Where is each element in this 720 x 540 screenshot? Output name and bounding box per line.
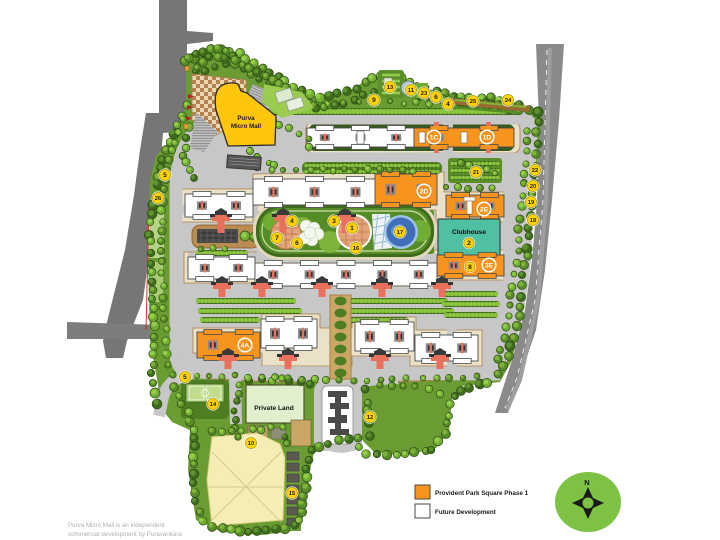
- svg-text:6: 6: [434, 94, 438, 101]
- svg-text:11: 11: [408, 88, 415, 94]
- svg-text:23: 23: [421, 91, 428, 97]
- svg-text:21: 21: [473, 170, 480, 176]
- svg-text:Future Development: Future Development: [435, 509, 497, 516]
- svg-text:1: 1: [350, 225, 354, 232]
- svg-text:2: 2: [467, 240, 471, 247]
- svg-text:9: 9: [372, 97, 376, 104]
- svg-text:12: 12: [367, 415, 373, 421]
- svg-text:4: 4: [446, 101, 450, 108]
- svg-text:4: 4: [290, 218, 294, 225]
- svg-text:Private Land: Private Land: [254, 405, 294, 412]
- svg-text:22: 22: [532, 168, 538, 174]
- svg-text:15: 15: [289, 491, 296, 497]
- svg-text:20: 20: [530, 184, 536, 190]
- svg-text:Provident Park Square Phase 1: Provident Park Square Phase 1: [435, 490, 529, 497]
- svg-text:Micro Mall: Micro Mall: [231, 123, 262, 130]
- svg-text:16: 16: [353, 246, 360, 252]
- svg-text:Clubhouse: Clubhouse: [452, 229, 486, 236]
- svg-text:1C: 1C: [430, 135, 439, 142]
- svg-text:5: 5: [163, 172, 167, 179]
- svg-text:19: 19: [528, 200, 535, 206]
- svg-text:24: 24: [505, 98, 512, 104]
- svg-text:commercial development by Pura: commercial development by Puravankara: [68, 531, 182, 538]
- svg-text:1D: 1D: [483, 135, 492, 142]
- svg-text:Purva: Purva: [237, 115, 255, 122]
- svg-text:Purva Micro Mall is an indepen: Purva Micro Mall is an independent: [68, 522, 165, 529]
- svg-text:26: 26: [155, 196, 162, 202]
- svg-text:14: 14: [210, 402, 217, 408]
- svg-text:7: 7: [275, 235, 279, 242]
- svg-text:17: 17: [397, 230, 403, 236]
- svg-text:4A: 4A: [241, 343, 250, 350]
- svg-text:10: 10: [248, 441, 254, 447]
- svg-text:18: 18: [530, 218, 537, 224]
- svg-text:25: 25: [470, 99, 477, 105]
- svg-text:6: 6: [295, 240, 299, 247]
- svg-text:5: 5: [183, 374, 187, 381]
- svg-text:3: 3: [332, 218, 336, 225]
- svg-text:13: 13: [387, 85, 394, 91]
- svg-text:3E: 3E: [485, 263, 494, 270]
- svg-text:2E: 2E: [480, 207, 489, 214]
- svg-text:N: N: [584, 478, 589, 487]
- svg-text:8: 8: [468, 264, 472, 271]
- svg-text:2D: 2D: [420, 189, 429, 196]
